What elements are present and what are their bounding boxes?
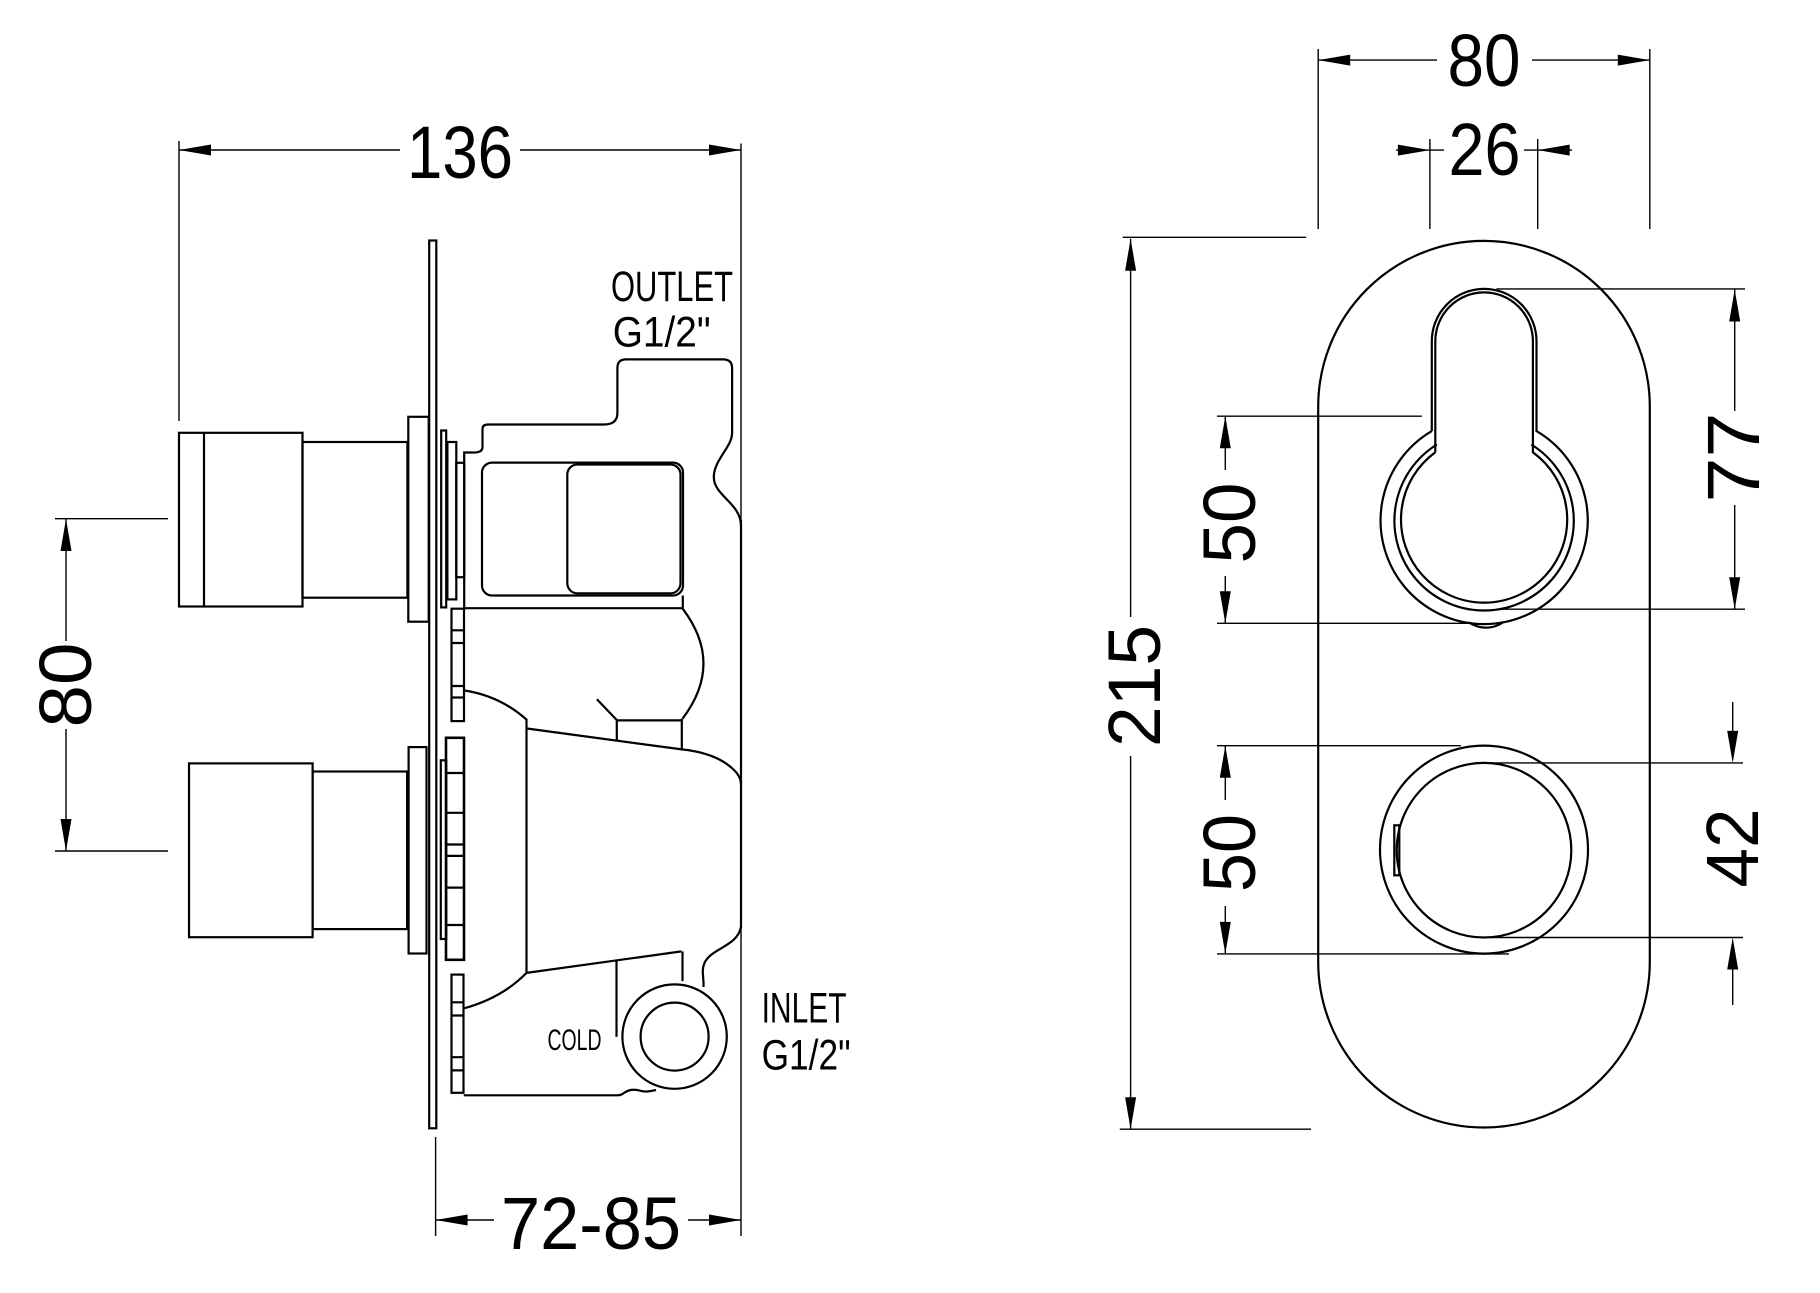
svg-text:72-85: 72-85: [501, 1182, 681, 1265]
svg-text:50: 50: [1188, 483, 1271, 564]
svg-text:136: 136: [407, 111, 513, 194]
svg-text:OUTLET: OUTLET: [611, 263, 733, 311]
svg-text:G1/2": G1/2": [762, 1032, 851, 1080]
svg-text:215: 215: [1093, 625, 1176, 747]
svg-text:G1/2": G1/2": [613, 308, 711, 356]
svg-text:80: 80: [1448, 19, 1521, 102]
svg-text:77: 77: [1692, 413, 1775, 503]
svg-text:COLD: COLD: [548, 1024, 602, 1057]
svg-text:50: 50: [1188, 814, 1271, 892]
svg-text:26: 26: [1449, 108, 1521, 191]
svg-text:42: 42: [1691, 809, 1774, 888]
svg-text:80: 80: [24, 643, 107, 728]
svg-text:INLET: INLET: [762, 984, 847, 1032]
